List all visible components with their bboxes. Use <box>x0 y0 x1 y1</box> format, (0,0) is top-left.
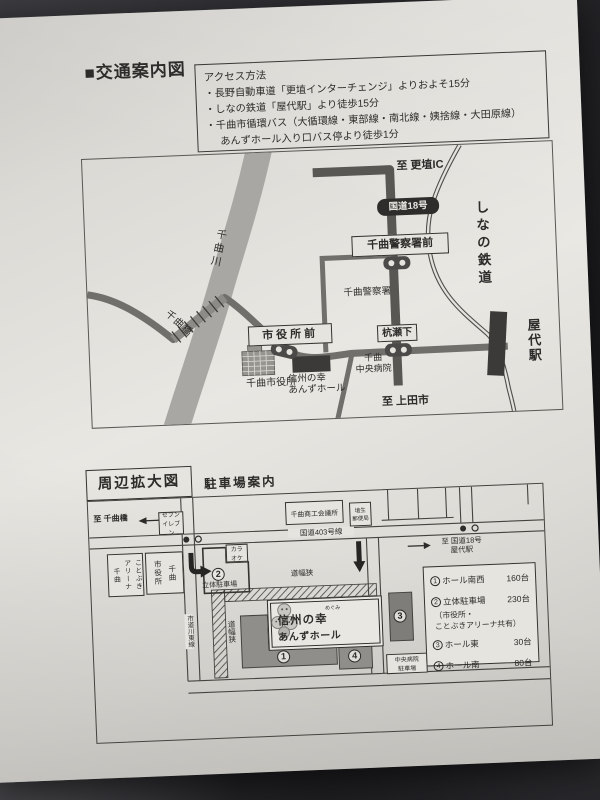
narrow-road-label: 道幅狭 <box>227 620 237 643</box>
logo-furigana: めぐみ <box>325 604 340 612</box>
parking-guide-subtitle: 駐車場案内 <box>204 470 277 492</box>
down-route-arrow <box>353 541 366 572</box>
to-route18-label: 至 国道18号 屋代駅 <box>431 535 492 556</box>
post-office-label: 埴生 郵便局 <box>349 502 372 527</box>
legend-count: 30台 <box>513 635 531 648</box>
chamber-of-commerce-label: 千曲商工会議所 <box>285 500 344 525</box>
access-info-box: アクセス方法 ・長野自動車道「更埴インターチェンジ」よりおよそ15分 ・しなの鉄… <box>194 50 549 152</box>
city-road-kawahigashi-label: 市道川東線 <box>184 614 194 649</box>
anzu-hall-logo-inner: めぐみ 信州の幸 あんずホール <box>270 598 381 647</box>
parking-structure-label: 立体駐車場 <box>202 581 237 591</box>
tilted-paper-wrap: ■交通案内図 アクセス方法 ・長野自動車道「更埴インターチェンジ」よりおよそ15… <box>0 0 600 800</box>
legend-num: 3 <box>433 640 443 650</box>
legend-row: 1 ホール南西 160台 <box>430 571 529 587</box>
traffic-signal-icon <box>183 536 201 543</box>
detail-map-title: 周辺拡大図 <box>85 466 192 501</box>
kuisegake-stop-label: 杭瀬下 <box>377 324 418 343</box>
legend-name: 立体駐車場 <box>443 594 486 608</box>
central-hospital-label: 千曲 中央病院 <box>342 351 405 375</box>
anzu-hall-logo-text: めぐみ 信州の幸 あんずホール <box>277 604 341 643</box>
to-ueda-label: 至 上田市 <box>382 394 430 409</box>
karaoke-label: カラ オケ <box>226 544 249 563</box>
kotobuki-arena-text: ことぶき アリーナ 千曲 <box>109 559 143 591</box>
city-hall-building-icon <box>242 344 275 375</box>
narrow-road-label: 道幅狭 <box>291 568 314 578</box>
detail-city-hall-label: 千曲 市役所 <box>145 551 185 594</box>
kotobuki-arena-label: ことぶき アリーナ 千曲 <box>107 553 145 597</box>
seven-eleven-label: セブン イレブン <box>158 511 184 535</box>
overview-map: 至 更埴IC 国道18号 千曲警察署前 千曲警察署 しなの鉄道 屋代駅 杭瀬下 … <box>81 140 563 429</box>
legend-count: 160台 <box>506 571 529 584</box>
logo-line2: あんずホール <box>278 626 342 644</box>
anzu-hall-building <box>292 355 331 373</box>
parking-legend: 1 ホール南西 160台 2 立体駐車場 230台 （市役所・ ことぶきアリーナ… <box>423 562 540 666</box>
detail-map: 至 千曲橋 セブン イレブン 千曲商工会議所 埴生 郵便局 国道403号線 こと… <box>87 483 553 744</box>
legend-name: ホール南西 <box>442 573 485 587</box>
route18-badge: 国道18号 <box>377 197 440 216</box>
legend-num: 1 <box>430 576 440 586</box>
page-title: ■交通案内図 <box>84 55 186 84</box>
legend-count: 80台 <box>514 656 532 669</box>
bus-stop-icon <box>383 256 410 270</box>
legend-count: 230台 <box>507 592 530 605</box>
hospital-parking-label: 中央病院 駐車場 <box>386 653 428 675</box>
to-koshoku-ic-label: 至 更埴IC <box>396 159 444 174</box>
anzu-hall-logo-box: めぐみ 信州の幸 あんずホール <box>267 595 384 651</box>
right-arrow-icon <box>408 542 431 550</box>
police-station-front-stop-label: 千曲警察署前 <box>351 232 449 257</box>
photo-background: ■交通案内図 アクセス方法 ・長野自動車道「更埴インターチェンジ」よりおよそ15… <box>0 0 600 800</box>
detail-city-hall-text: 千曲 市役所 <box>150 560 180 587</box>
legend-row: 3 ホール東 30台 <box>433 635 532 651</box>
police-station-label: 千曲警察署 <box>343 286 391 299</box>
legend-name: ホール南 <box>445 658 479 671</box>
city-hall-front-stop-label: 市役所前 <box>248 323 333 346</box>
legend-num: 2 <box>431 597 441 607</box>
anzu-hall-label: 信州の幸 あんずホール <box>288 372 346 397</box>
parking2-route-arrow <box>191 552 212 578</box>
shinano-railway-label: しなの鉄道 <box>472 200 492 288</box>
legend-note: （市役所・ ことぶきアリーナ共有） <box>434 606 531 632</box>
traffic-signal-icon <box>460 525 478 532</box>
legend-name: ホール東 <box>445 637 479 650</box>
legend-num: 4 <box>433 661 443 671</box>
yashiro-station-label: 屋代駅 <box>525 318 542 364</box>
to-chikuma-bridge-label: 至 千曲橋 <box>93 513 128 524</box>
